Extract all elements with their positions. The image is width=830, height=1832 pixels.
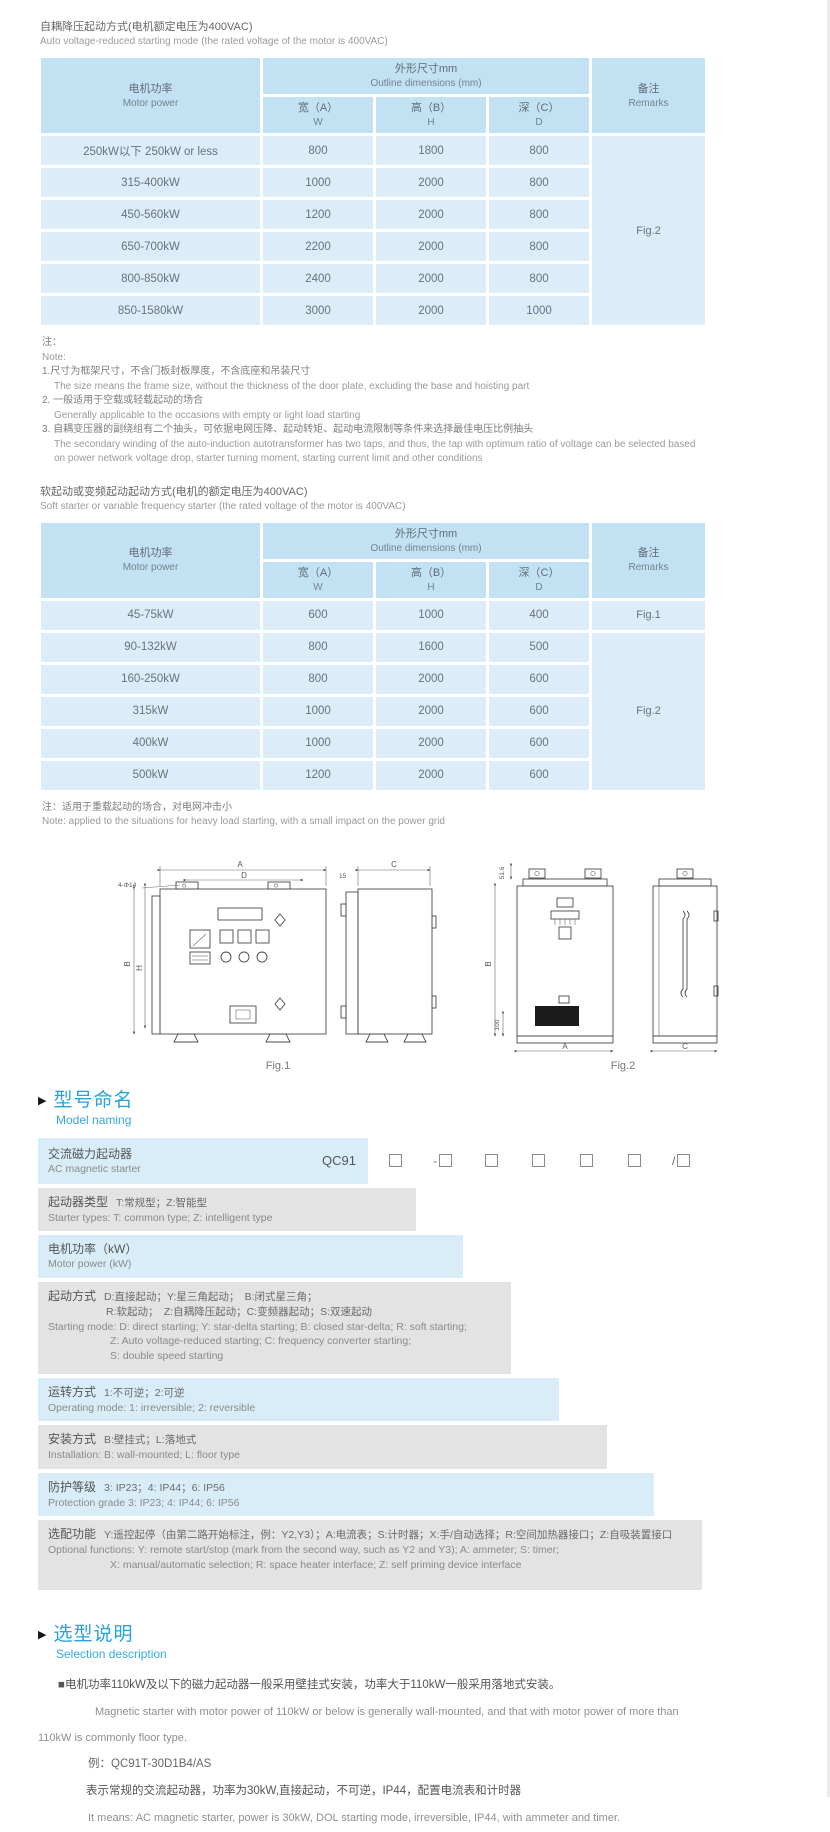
figure-2: 51.6 B 100 A — [473, 856, 773, 1072]
header-dims-en: Outline dimensions (mm) — [265, 77, 587, 90]
cell-depth: 800 — [489, 136, 589, 165]
field-protection-grade: 防护等级3: IP23；4: IP44；6: IP56 Protection g… — [38, 1473, 654, 1517]
col-header-outline-dimensions: 外形尺寸mm Outline dimensions (mm) — [263, 523, 589, 559]
note-label-en: Note: — [42, 351, 702, 366]
model-position-4 — [517, 1138, 559, 1184]
model-position-2: - — [422, 1138, 464, 1184]
cell-height: 1800 — [376, 136, 486, 165]
triangle-bullet-icon: ▶ — [38, 1625, 46, 1645]
figure-2-drawing: 51.6 B 100 A — [473, 856, 773, 1054]
fig2-dim-a: A — [562, 1042, 568, 1051]
page-content: 自耦降压起动方式(电机额定电压为400VAC) Auto voltage-red… — [38, 0, 702, 1832]
fig1-dim-b: B — [123, 961, 132, 966]
section2-title-zh: 软起动或变频起动起动方式(电机的额定电压为400VAC) — [40, 485, 702, 500]
header-dims-zh: 外形尺寸mm — [265, 62, 587, 77]
model-naming-grid: 交流磁力起动器 AC magnetic starter QC91 - / 起动器… — [38, 1138, 702, 1591]
model-position-7: / — [660, 1138, 702, 1184]
col-header-depth: 深（C） D — [489, 562, 589, 598]
fig1-dim-c: C — [391, 860, 397, 869]
cell-remark-fig1: Fig.1 — [592, 601, 705, 630]
note-label-zh: 注： — [42, 336, 702, 351]
col-header-height: 高（B） H — [376, 97, 486, 133]
cell-power: 250kW以下 250kW or less — [41, 136, 260, 165]
col-header-motor-power: 电机功率 Motor power — [41, 523, 260, 598]
model-base-en: AC magnetic starter — [48, 1162, 141, 1176]
table2-note: 注：适用于重载起动的场合，对电网冲击小 Note: applied to the… — [42, 801, 702, 830]
col-header-width: 宽（A） W — [263, 562, 373, 598]
note2-en: Note: applied to the situations for heav… — [42, 815, 702, 830]
placeholder-box-icon — [389, 1154, 402, 1167]
note-item: The size means the frame size, without t… — [42, 380, 702, 395]
model-naming-heading-en: Model naming — [56, 1112, 702, 1128]
header-remarks-en: Remarks — [594, 97, 703, 110]
figure-1: A D 4-Φ14 B H — [118, 856, 438, 1072]
field-optional-functions: 选配功能Y:遥控起停（由第二路开始标注，例：Y2,Y3）；A:电流表；S:计时器… — [38, 1520, 702, 1590]
fig2-dim-100: 100 — [494, 1019, 501, 1030]
placeholder-box-icon — [628, 1154, 641, 1167]
model-base-zh: 交流磁力起动器 — [48, 1146, 141, 1162]
figures-row: A D 4-Φ14 B H — [118, 856, 702, 1072]
col-header-depth: 深（C） D — [489, 97, 589, 133]
table1-notes: 注： Note: 1.尺寸为框架尺寸，不含门板封板厚度，不含底座和吊装尺寸 Th… — [42, 336, 702, 467]
section1-title-zh: 自耦降压起动方式(电机额定电压为400VAC) — [40, 20, 702, 35]
fig2-dim-516: 51.6 — [499, 866, 506, 879]
fig2-dim-c: C — [682, 1042, 688, 1051]
model-position-3 — [469, 1138, 511, 1184]
field-starter-type: 起动器类型T:常规型；Z:智能型 Starter types: T: commo… — [38, 1188, 416, 1232]
selection-example-code: 例：QC91T-30D1B4/AS — [88, 1751, 702, 1778]
model-naming-heading: ▶ 型号命名 Model naming — [38, 1090, 702, 1128]
placeholder-box-icon — [580, 1154, 593, 1167]
model-position-1 — [374, 1138, 416, 1184]
figure-2-caption: Fig.2 — [473, 1060, 773, 1072]
selection-heading-en: Selection description — [56, 1646, 702, 1662]
note-item: 1.尺寸为框架尺寸，不含门板封板厚度，不含底座和吊装尺寸 — [42, 365, 702, 380]
placeholder-box-icon — [485, 1154, 498, 1167]
cell-remark-fig2: Fig.2 — [592, 136, 705, 325]
placeholder-box-icon — [532, 1154, 545, 1167]
figure-1-drawing: A D 4-Φ14 B H — [118, 856, 438, 1054]
section2-title-en: Soft starter or variable frequency start… — [40, 500, 702, 514]
section2-title: 软起动或变频起动起动方式(电机的额定电压为400VAC) Soft starte… — [40, 485, 702, 514]
placeholder-box-icon — [439, 1154, 452, 1167]
field-installation: 安装方式B:壁挂式；L:落地式 Installation: B: wall-mo… — [38, 1425, 607, 1469]
fig1-dim-a: A — [237, 860, 243, 869]
model-naming-heading-zh: 型号命名 — [53, 1090, 133, 1112]
header-motor-power-en: Motor power — [43, 97, 258, 110]
note2-zh: 注：适用于重载起动的场合，对电网冲击小 — [42, 801, 702, 816]
fig1-dim-h: H — [135, 964, 144, 970]
selection-example-zh: 表示常规的交流起动器，功率为30kW,直接起动，不可逆，IP44，配置电流表和计… — [86, 1778, 702, 1805]
field-motor-power: 电机功率（kW） Motor power (kW) — [38, 1235, 463, 1278]
section1-title: 自耦降压起动方式(电机额定电压为400VAC) Auto voltage-red… — [40, 20, 702, 49]
selection-p1-en: Magnetic starter with motor power of 110… — [38, 1699, 702, 1751]
selection-heading: ▶ 选型说明 Selection description — [38, 1624, 702, 1662]
figure-1-caption: Fig.1 — [118, 1060, 438, 1072]
selection-p1-zh: ■电机功率110kW及以下的磁力起动器一般采用壁挂式安装，功率大于110kW一般… — [58, 1672, 702, 1699]
selection-heading-zh: 选型说明 — [53, 1624, 133, 1646]
table-row: 45-75kW6001000400 Fig.1 — [41, 601, 705, 630]
model-position-5 — [565, 1138, 607, 1184]
fig1-dim-d: D — [241, 871, 247, 880]
placeholder-box-icon — [677, 1154, 690, 1167]
field-operating-mode: 运转方式1:不可逆；2:可逆 Operating mode: 1: irreve… — [38, 1378, 559, 1422]
note-item: 2. 一般适用于空载或轻载起动的场合 — [42, 394, 702, 409]
model-base-label: 交流磁力起动器 AC magnetic starter QC91 — [38, 1138, 368, 1184]
note-item: Generally applicable to the occasions wi… — [42, 409, 702, 424]
cell-width: 800 — [263, 136, 373, 165]
auto-voltage-dimensions-table: 电机功率 Motor power 外形尺寸mm Outline dimensio… — [38, 55, 708, 328]
field-starting-mode: 起动方式D:直接起动；Y:星三角起动； B:闭式星三角； R:软起动； Z:自耦… — [38, 1282, 511, 1374]
header-remarks-zh: 备注 — [594, 82, 703, 97]
col-header-remarks: 备注 Remarks — [592, 523, 705, 598]
cell-remark-fig2: Fig.2 — [592, 633, 705, 790]
fig1-dim-15: 15 — [339, 873, 347, 880]
selection-text: ■电机功率110kW及以下的磁力起动器一般采用壁挂式安装，功率大于110kW一般… — [38, 1672, 702, 1832]
table-row: 250kW以下 250kW or less 800 1800 800 Fig.2 — [41, 136, 705, 165]
catalog-page: 自耦降压起动方式(电机额定电压为400VAC) Auto voltage-red… — [0, 0, 830, 1797]
col-header-width: 宽（A） W — [263, 97, 373, 133]
model-code: QC91 — [322, 1153, 356, 1168]
triangle-bullet-icon: ▶ — [38, 1091, 46, 1111]
section1-title-en: Auto voltage-reduced starting mode (the … — [40, 35, 702, 49]
header-motor-power-zh: 电机功率 — [43, 82, 258, 97]
col-header-motor-power: 电机功率 Motor power — [41, 58, 260, 133]
model-position-6 — [613, 1138, 655, 1184]
soft-starter-dimensions-table: 电机功率 Motor power 外形尺寸mm Outline dimensio… — [38, 520, 708, 793]
fig2-dim-b: B — [484, 961, 493, 966]
fig1-holes-label: 4-Φ14 — [118, 882, 137, 889]
note-item: 3. 自耦变压器的副绕组有二个抽头，可依据电网压降、起动转矩、起动电流限制等条件… — [42, 423, 702, 438]
col-header-height: 高（B） H — [376, 562, 486, 598]
note-item: The secondary winding of the auto-induct… — [42, 438, 702, 467]
table-row: 90-132kW8001600500 Fig.2 — [41, 633, 705, 662]
col-header-outline-dimensions: 外形尺寸mm Outline dimensions (mm) — [263, 58, 589, 94]
col-header-remarks: 备注 Remarks — [592, 58, 705, 133]
selection-example-en: It means: AC magnetic starter, power is … — [88, 1805, 702, 1832]
